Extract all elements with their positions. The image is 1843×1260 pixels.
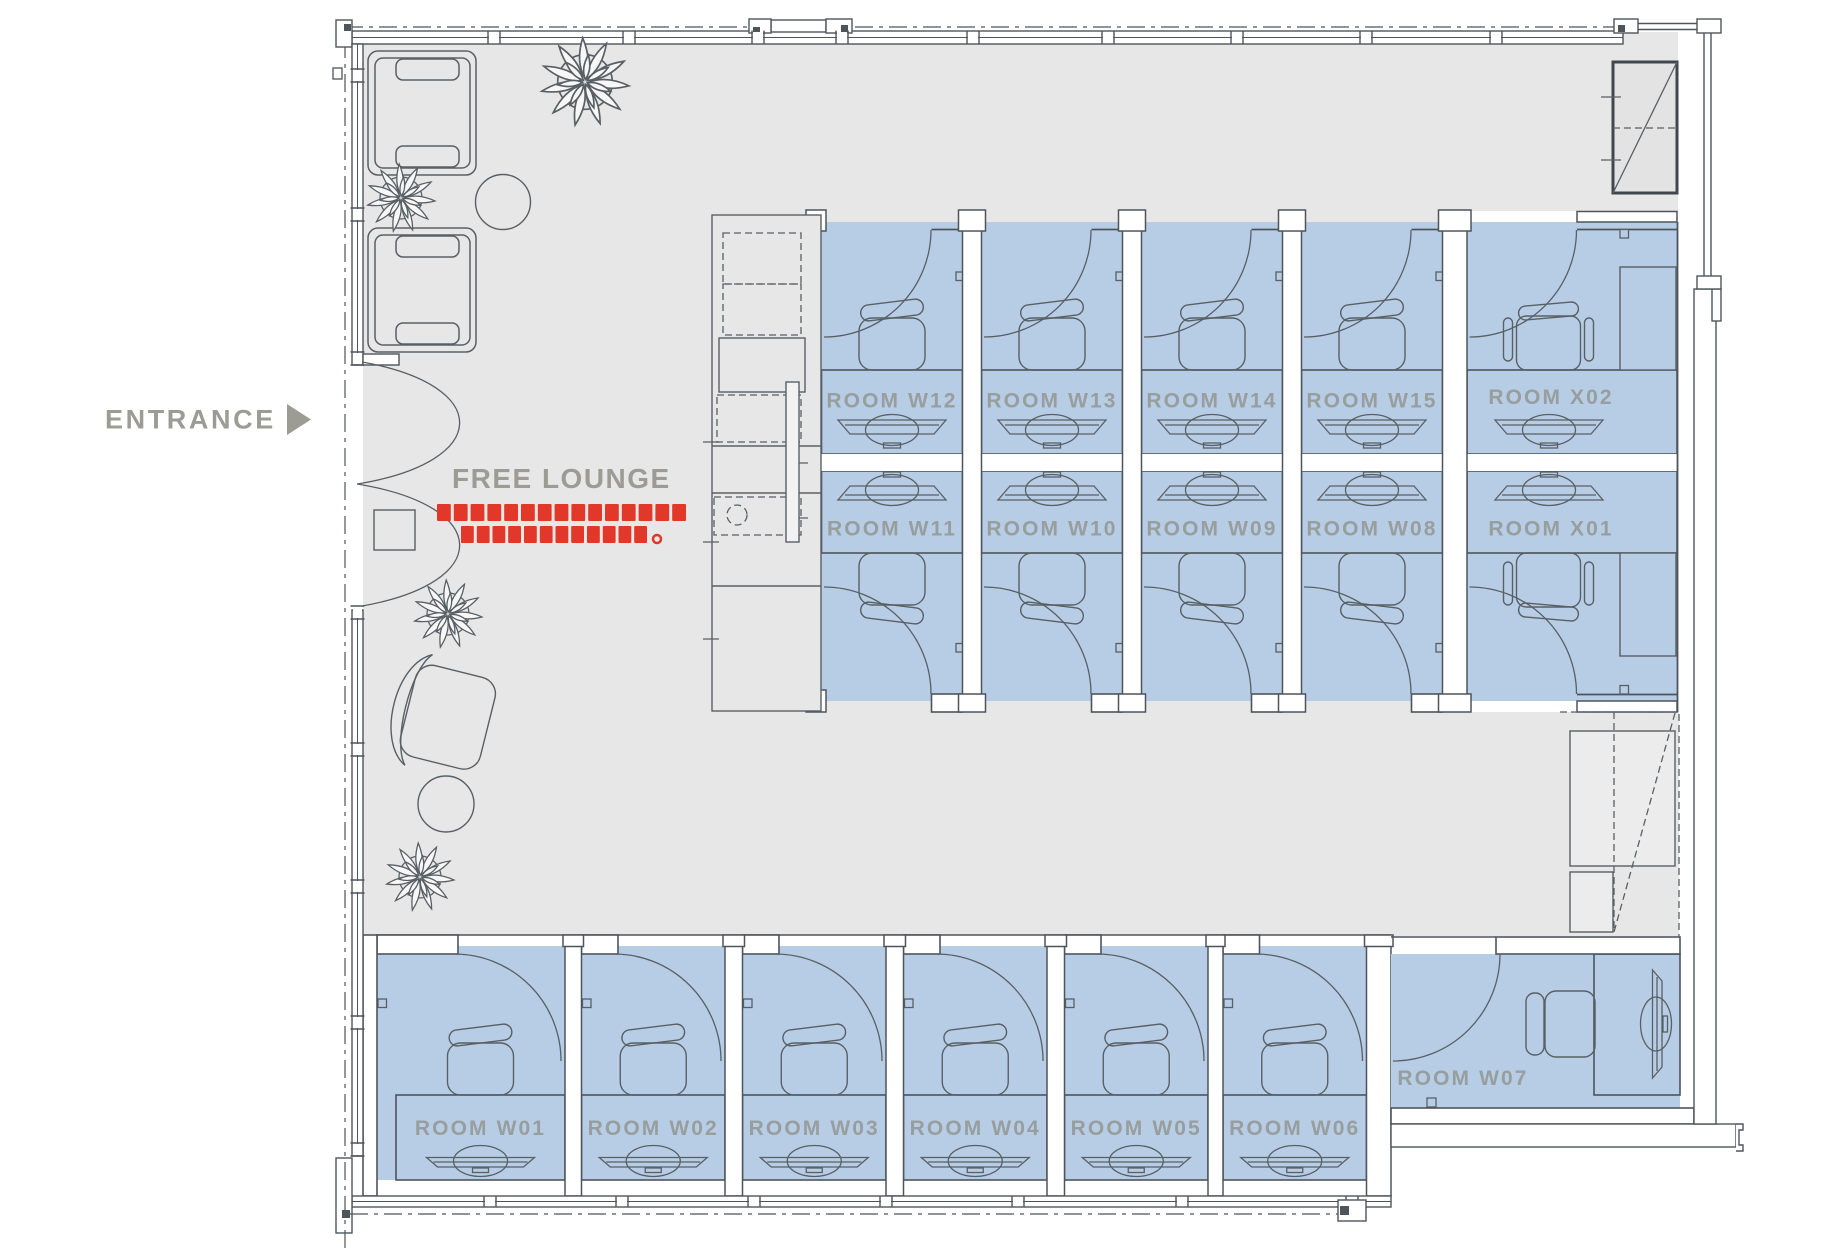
svg-text:ROOM W10: ROOM W10 <box>986 518 1117 541</box>
svg-text:ROOM W14: ROOM W14 <box>1146 390 1277 413</box>
svg-text:ROOM W04: ROOM W04 <box>910 1117 1041 1140</box>
svg-text:ROOM W07: ROOM W07 <box>1397 1067 1528 1090</box>
svg-text:ROOM W02: ROOM W02 <box>588 1117 719 1140</box>
svg-text:ROOM X01: ROOM X01 <box>1488 518 1613 541</box>
svg-text:ROOM W01: ROOM W01 <box>415 1117 546 1140</box>
svg-text:ROOM W15: ROOM W15 <box>1306 390 1437 413</box>
svg-text:ROOM W09: ROOM W09 <box>1146 518 1277 541</box>
svg-text:ROOM W13: ROOM W13 <box>986 390 1117 413</box>
svg-text:ROOM W11: ROOM W11 <box>827 518 957 541</box>
svg-text:ROOM W05: ROOM W05 <box>1071 1117 1202 1140</box>
svg-text:ROOM W03: ROOM W03 <box>749 1117 880 1140</box>
svg-text:ROOM W08: ROOM W08 <box>1306 518 1437 541</box>
svg-text:ROOM W12: ROOM W12 <box>826 390 957 413</box>
svg-text:ENTRANCE: ENTRANCE <box>105 405 276 435</box>
svg-text:FREE LOUNGE: FREE LOUNGE <box>452 463 671 494</box>
svg-text:ROOM X02: ROOM X02 <box>1488 386 1613 409</box>
svg-text:ROOM W06: ROOM W06 <box>1229 1117 1360 1140</box>
